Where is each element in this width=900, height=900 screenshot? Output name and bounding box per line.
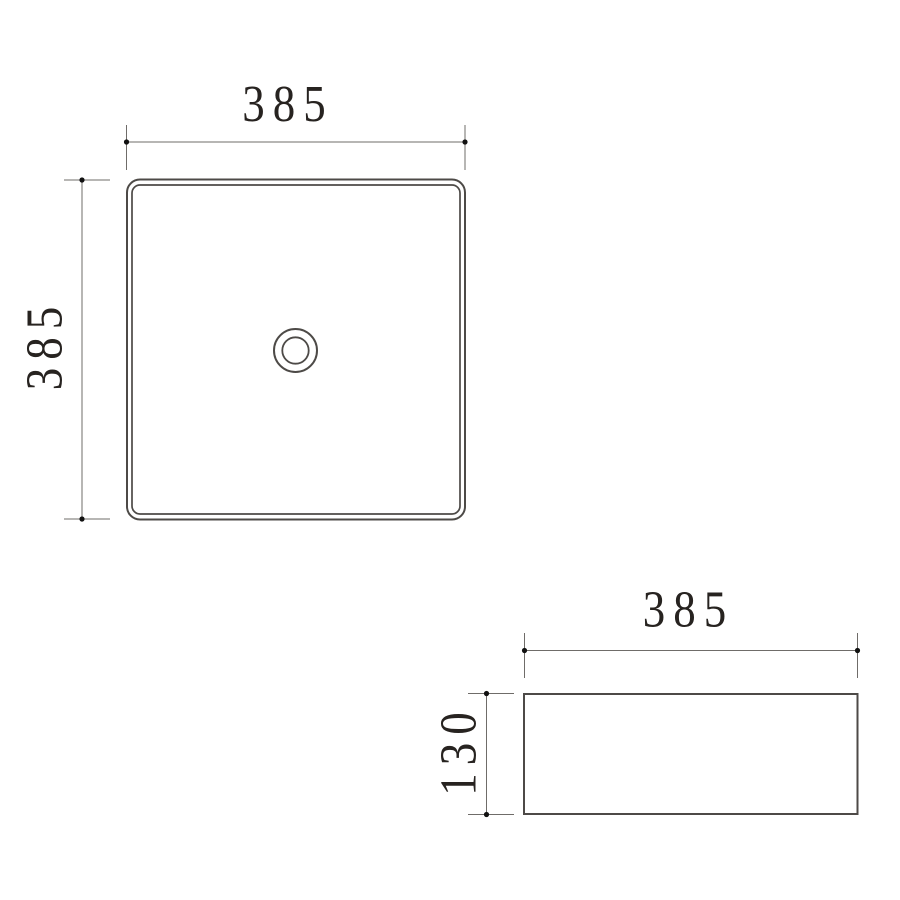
svg-text:130: 130 <box>429 704 487 795</box>
svg-text:385: 385 <box>643 580 734 638</box>
svg-text:385: 385 <box>242 75 333 133</box>
svg-text:385: 385 <box>15 299 73 390</box>
